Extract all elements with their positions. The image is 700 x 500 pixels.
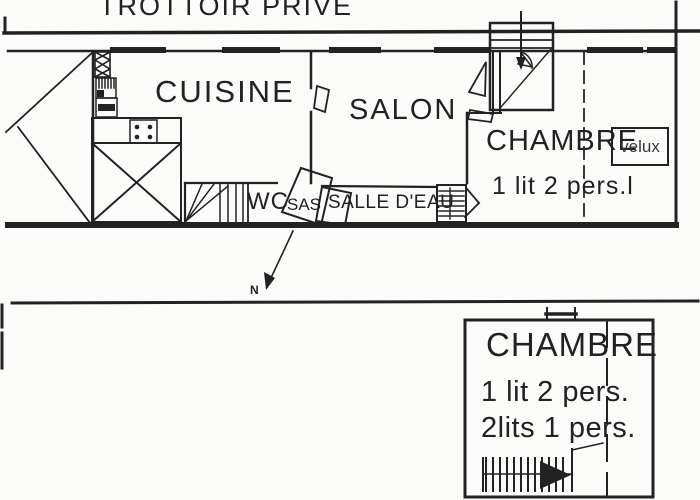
beds-annotation-lower-2: 2lits 1 pers. bbox=[481, 414, 636, 443]
winder-stairs bbox=[186, 184, 243, 223]
door-leaf-salon bbox=[469, 62, 486, 96]
room-label-salle-eau: SALLE D'EAU bbox=[328, 193, 454, 212]
beds-annotation-upper: 1 lit 2 pers.l bbox=[492, 174, 634, 199]
room-label-chambre-lower: CHAMBRE bbox=[486, 328, 658, 361]
stove-symbol bbox=[96, 78, 116, 98]
bedroom-stairs bbox=[483, 443, 603, 491]
bedroom-window-tick bbox=[546, 308, 576, 320]
velux-label: velux bbox=[620, 137, 660, 157]
door-swing-chambre-entry bbox=[465, 189, 479, 217]
room-label-wc: WC bbox=[247, 190, 289, 214]
crossed-island bbox=[92, 143, 181, 222]
oven-symbol bbox=[96, 98, 117, 117]
street-label: TROTTOIR PRIVE bbox=[99, 0, 353, 20]
beds-annotation-lower-1: 1 lit 2 pers. bbox=[481, 378, 629, 407]
crossed-bay bbox=[6, 52, 93, 223]
chimney-hatch bbox=[95, 52, 110, 77]
salon-chambre-wall bbox=[467, 52, 501, 183]
kitchen-counter bbox=[92, 118, 181, 143]
facade-wall bbox=[8, 50, 676, 51]
room-label-sas: SAS bbox=[287, 196, 321, 213]
floor-plan-scan: TROTTOIR PRIVE CUISINE SALON CHAMBRE 1 l… bbox=[0, 0, 700, 500]
door-leaf-kitchen-salon bbox=[314, 86, 329, 112]
ground-line bbox=[12, 301, 698, 303]
north-label: N bbox=[250, 284, 259, 296]
velux-window-box: velux bbox=[611, 127, 669, 166]
room-label-cuisine: CUISINE bbox=[155, 76, 295, 107]
cooktop-burners bbox=[135, 125, 153, 140]
door-leaf-landing bbox=[468, 110, 493, 122]
room-label-salon: SALON bbox=[349, 96, 457, 125]
north-arrow bbox=[264, 231, 293, 290]
